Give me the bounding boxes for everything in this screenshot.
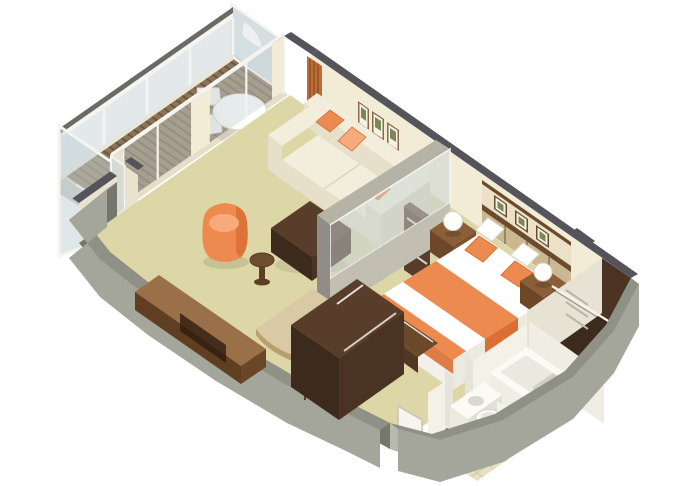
lamp-shadow (535, 282, 551, 288)
wall-post (272, 36, 284, 99)
floorplan-image (0, 0, 680, 486)
side-table-top (250, 253, 274, 267)
suite-floorplan-rendering (0, 0, 680, 486)
sphere-lamp (444, 212, 463, 231)
sink-basin (468, 396, 484, 406)
lamp-shadow (445, 231, 461, 237)
wall-post (192, 89, 209, 155)
chair-seat (209, 214, 239, 232)
barrel-chair (202, 203, 249, 269)
sphere-lamp (534, 263, 552, 281)
